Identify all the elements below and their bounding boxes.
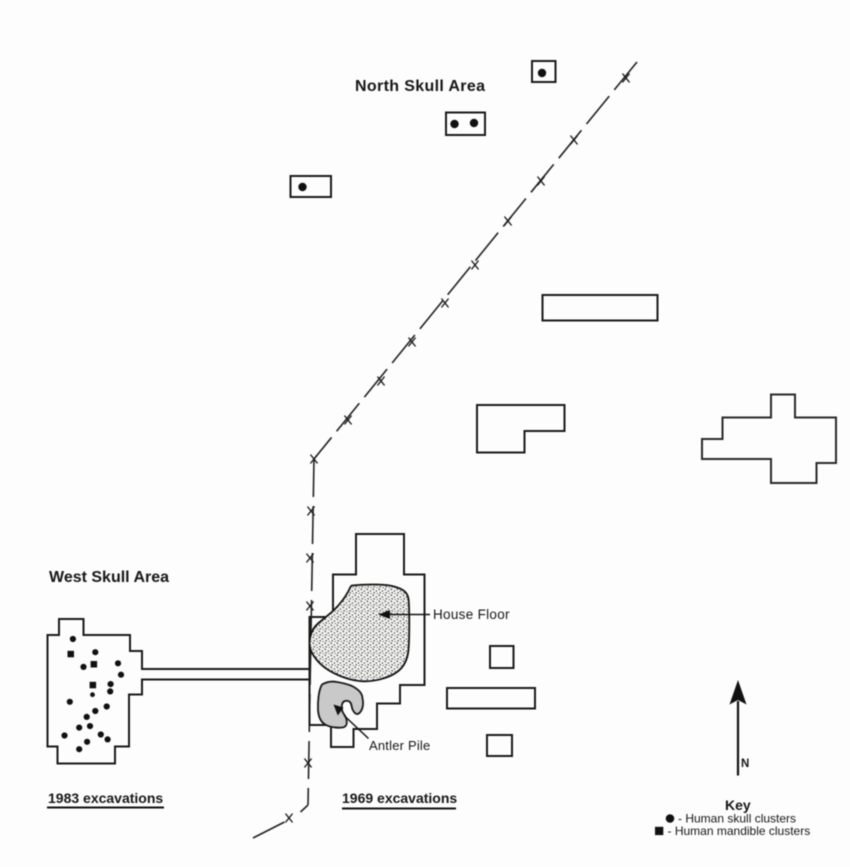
svg-text:North Skull Area: North Skull Area bbox=[355, 78, 485, 95]
svg-text:Antler Pile: Antler Pile bbox=[369, 738, 430, 753]
svg-text:- Human mandible clusters: - Human mandible clusters bbox=[668, 824, 811, 838]
svg-text:House Floor: House Floor bbox=[433, 607, 510, 622]
svg-text:1969 excavations: 1969 excavations bbox=[342, 790, 457, 806]
svg-text:1983 excavations: 1983 excavations bbox=[48, 790, 163, 806]
svg-text:N: N bbox=[741, 758, 749, 770]
svg-text:West Skull Area: West Skull Area bbox=[49, 569, 169, 586]
